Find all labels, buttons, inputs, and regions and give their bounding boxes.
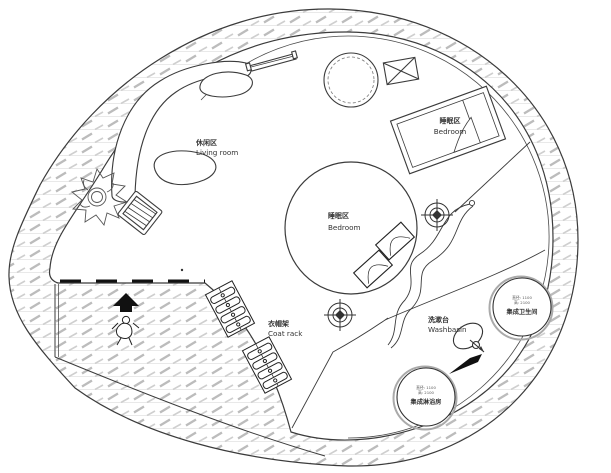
partition-lower-left <box>292 318 388 428</box>
washbasin-symbol <box>449 318 488 354</box>
round-table <box>324 53 378 107</box>
bedroom-upper-label-en: Bedroom <box>434 127 467 136</box>
living-room-label-zh: 休闲区 <box>195 138 217 147</box>
crossed-box-symbol <box>383 57 418 84</box>
toilet-pod-name: 集成卫生间 <box>506 308 538 316</box>
shower-pod: 直径: 1100 高: 2100 集成淋浴房 <box>394 367 457 430</box>
bedroom-center-label-en: Bedroom <box>328 223 361 232</box>
floor-plan-canvas: 直径: 1100 高: 2100 集成卫生间 直径: 1100 高: 2100 … <box>0 0 611 473</box>
wall-shelf <box>246 51 298 71</box>
direction-arrow <box>449 354 482 374</box>
coat-rack-label-zh: 衣帽架 <box>268 319 289 328</box>
shower-pod-height: 高: 2100 <box>418 390 435 395</box>
toilet-pod: 直径: 1100 高: 2100 集成卫生间 <box>490 277 553 340</box>
washbasin-label-zh: 洗漱台 <box>428 315 449 324</box>
bedroom-center-label-zh: 睡眠区 <box>328 211 349 220</box>
bedroom-upper-label-zh: 睡眠区 <box>440 116 461 125</box>
shower-pod-name: 集成淋浴房 <box>410 398 442 406</box>
toilet-pod-height: 高: 2100 <box>514 300 531 305</box>
washbasin-label-en: Washbasin <box>428 325 467 334</box>
living-room-label-en: Living room <box>196 148 238 157</box>
floor-dot <box>181 269 183 271</box>
crosshair-symbol <box>324 299 356 331</box>
crosshair-symbol <box>421 199 453 231</box>
floor-plan-page: 直径: 1100 高: 2100 集成卫生间 直径: 1100 高: 2100 … <box>0 0 611 473</box>
coat-rack-label-en: Coat rack <box>268 329 303 338</box>
